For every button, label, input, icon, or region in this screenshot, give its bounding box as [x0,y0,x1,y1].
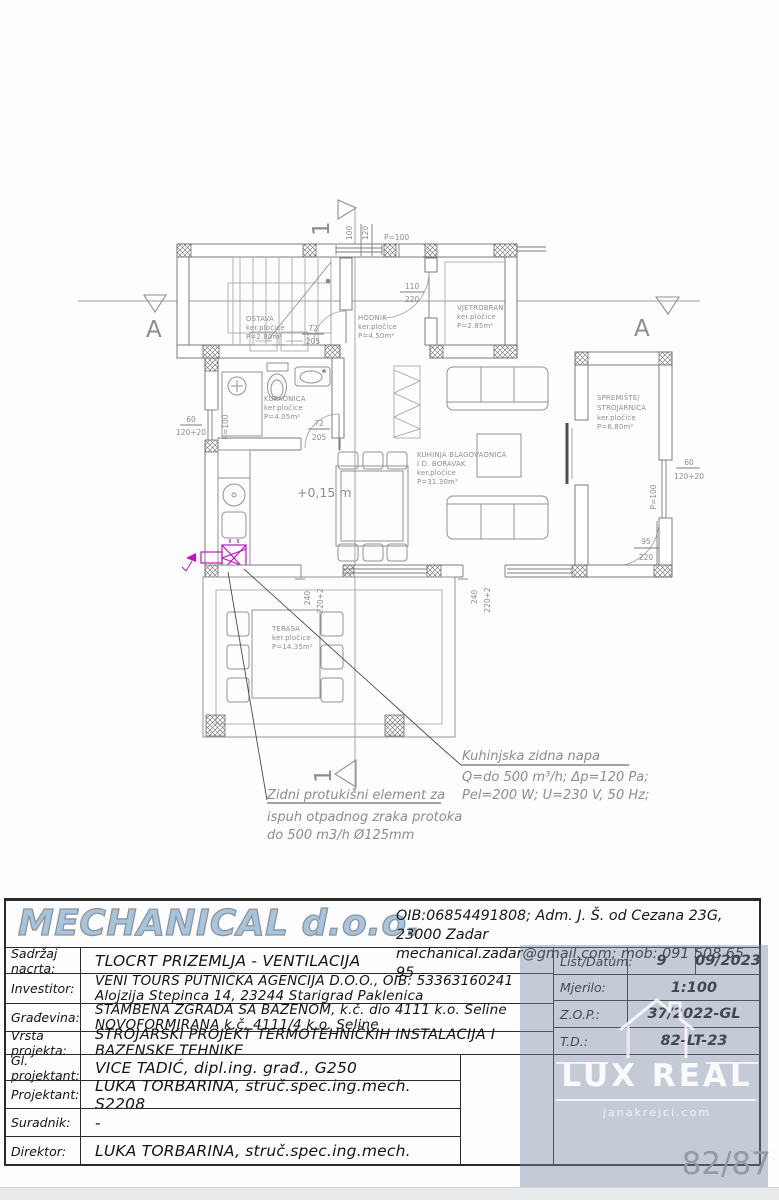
vent-arrow-icon [186,553,196,562]
dim-right-120: 120+20 [674,472,704,481]
dim-right-p100: P=100 [649,484,658,509]
dim-door1-240: 240 [303,591,312,606]
room-spremiste-area: P=6.80m² [597,423,633,431]
room-kupaonica-tile: ker.pločice [264,404,303,412]
annotation-napa-line2: Pel=200 W; U=230 V, 50 Hz; [462,788,649,803]
room-kuhinja-name2: I D. BORAVAK [417,460,466,468]
room-spremiste-name2: STROJARNICA [597,404,646,412]
walls-spremiste [575,352,672,566]
room-kuhinja-tile: ker.pločice [417,469,456,477]
row-value: VENI TOURS PUTNIČKA AGENCIJA D.O.O., OIB… [80,973,554,1004]
company-logo: MECHANICAL d.o.o. [18,903,421,944]
section-a-triangle-left [144,295,166,312]
row-label: Vrsta projekta: [4,1031,81,1055]
kitchen-counter [218,450,250,565]
section-1-triangle-top [338,200,356,219]
room-hodnik-area: P=4.50m² [358,332,394,340]
dining-table [336,452,408,561]
row-label: Sadržaj nacrta: [4,947,81,974]
watermark-subtitle: janakrejci.com [552,1106,762,1119]
dim-kupaonica-door-w: 72 [314,419,324,428]
dim-kupaonica-door-h: 205 [312,433,327,442]
room-ostava-name: OSTAVA [246,315,274,323]
kitchen-sink [222,512,246,538]
dim-top-p100: P=100 [384,233,409,242]
room-terasa-tile: ker.pločice [272,634,311,642]
row-label: Direktor: [4,1136,81,1166]
walls-main-left [204,358,344,577]
room-ostava-tile: ker.pločice [246,324,285,332]
dim-hodnik-door-h: 220 [405,295,420,304]
room-terasa-name: TERASA [271,625,300,633]
dim-left-120: 120+20 [176,428,206,437]
terrace-table [227,610,343,702]
floor-plan: A A 1 1 [0,0,779,895]
room-vjetrobran-name: VJETROBRAN [457,304,504,312]
dim-left-60: 60 [186,415,196,424]
house-icon [612,996,702,1058]
watermark-title: LUX REAL [552,1058,762,1094]
room-hodnik-tile: ker.pločice [358,323,397,331]
section-a-label-left: A [146,317,162,343]
row-value-line2: Alojzija Stepinca 14, 23244 Starigrad Pa… [95,989,424,1004]
dim-ostava-door-h: 205 [306,337,321,346]
bottom-strip [0,1187,779,1200]
row-label: Gl. projektant: [4,1054,81,1081]
dim-ostava-door-w: 72 [308,324,318,333]
room-kuhinja-area: P=31.30m² [417,478,458,486]
dim-top-100: 100 [345,226,354,241]
dim-door2-220: 220+2 [483,587,492,613]
room-ostava-area: P=2.80m² [246,333,282,341]
dim-top-120: 120 [361,226,370,241]
row-value-line1: VENI TOURS PUTNIČKA AGENCIJA D.O.O., OIB… [95,974,513,989]
row-value: LUKA TORBARINA, struč.spec.ing.mech. [80,1136,461,1166]
annotation-zidni-line1: Zidni protukišni element za [266,788,445,803]
dim-door2-240: 240 [470,590,479,605]
row-value: - [80,1108,461,1137]
section-1-triangle-bottom [335,760,356,787]
room-kuhinja-name: KUHINJA BLAGOVAONICA [417,451,507,459]
row-label: Suradnik: [4,1108,81,1137]
row-label: Projektant: [4,1080,81,1109]
room-spremiste-tile: ker.pločice [597,414,636,422]
row-value: STROJARSKI PROJEKT TERMOTEHNIČKIH INSTAL… [80,1031,554,1055]
room-spremiste-name: SPREMIŠTE/ [597,393,640,402]
room-kupaonica-name: KUPAONICA [264,395,306,403]
room-terasa-area: P=14.35m² [272,643,313,651]
dim-right-60: 60 [684,458,694,467]
room-hodnik-name: HODNIK [358,314,387,322]
row-value: TLOCRT PRIZEMLJA - VENTILACIJA [80,947,554,974]
dim-hodnik-door-w: 110 [405,282,420,291]
radiator [394,366,420,438]
row-label: Investitor: [4,973,81,1004]
section-a-label-right: A [634,316,650,342]
room-vjetrobran-area: P=2.85m² [457,322,493,330]
room-vjetrobran-tile: ker.pločice [457,313,496,321]
page-number: 82/87 [682,1146,771,1182]
cooktop [223,484,245,506]
company-address-line1: OIB:06854491808; Adm. J. Š. od Cezana 23… [396,907,761,945]
scanned-drawing-page: A A 1 1 [0,0,779,1200]
annotation-zidni-line3: do 500 m3/h Ø125mm [267,828,414,843]
dim-spremiste-door-h: 220 [639,553,654,562]
level-label: +0,15 m [297,485,351,500]
room-kupaonica-area: P=4.05m² [264,413,300,421]
terrace [203,577,455,737]
section-1-label-bottom: 1 [311,768,337,783]
annotation-napa-line1: Q=do 500 m³/h; Δp=120 Pa; [462,770,649,785]
row-value-line1: STAMBENA ZGRADA SA BAZENOM, k.č. dio 411… [95,1003,507,1018]
dim-spremiste-door-w: 95 [641,537,651,546]
section-a-triangle-right [656,297,679,314]
annotation-zidni-line2: ispuh otpadnog zraka protoka [267,810,462,825]
row-value: LUKA TORBARINA, struč.spec.ing.mech. S22… [80,1080,461,1109]
annotation-leaders [228,569,629,803]
annotation-napa-title: Kuhinjska zidna napa [462,749,600,764]
section-1-label-top: 1 [309,221,335,236]
wc-tank [267,363,288,371]
